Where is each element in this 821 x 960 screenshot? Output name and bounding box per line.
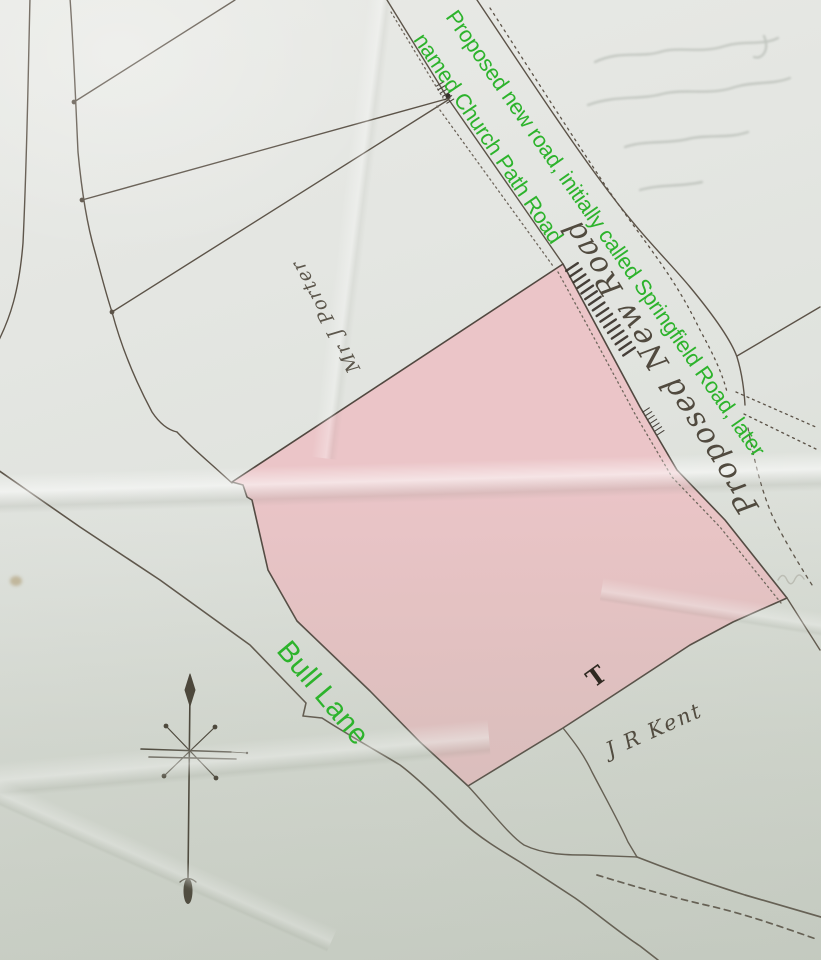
lane-upper-left xyxy=(0,0,232,483)
paper-crease xyxy=(0,758,337,953)
paper-crease xyxy=(0,719,491,800)
label-proposed-new-road: Proposed New Road xyxy=(556,211,767,520)
field-boundaries xyxy=(72,0,450,314)
label-owner-porter: Mr J Porter xyxy=(288,255,366,376)
faint-mark xyxy=(778,575,804,584)
map-photo: Proposed New Road Mr J Porter J R Kent T… xyxy=(0,0,821,960)
paper-crease xyxy=(600,578,821,642)
label-boundary-t-mark: T xyxy=(581,660,612,693)
map-drawing xyxy=(0,0,821,960)
label-owner-kent: J R Kent xyxy=(602,698,706,762)
faint-handwriting xyxy=(588,36,790,190)
compass-rose-icon xyxy=(141,674,248,904)
paper-crease xyxy=(311,0,394,460)
tick-cluster-lower xyxy=(643,408,664,435)
annotation-bull-lane: Bull Lane xyxy=(269,635,375,753)
paper-stain xyxy=(10,576,22,586)
paper-shading xyxy=(0,0,400,260)
annotation-road-note-line1: Proposed new road, initially called Spri… xyxy=(441,5,771,461)
